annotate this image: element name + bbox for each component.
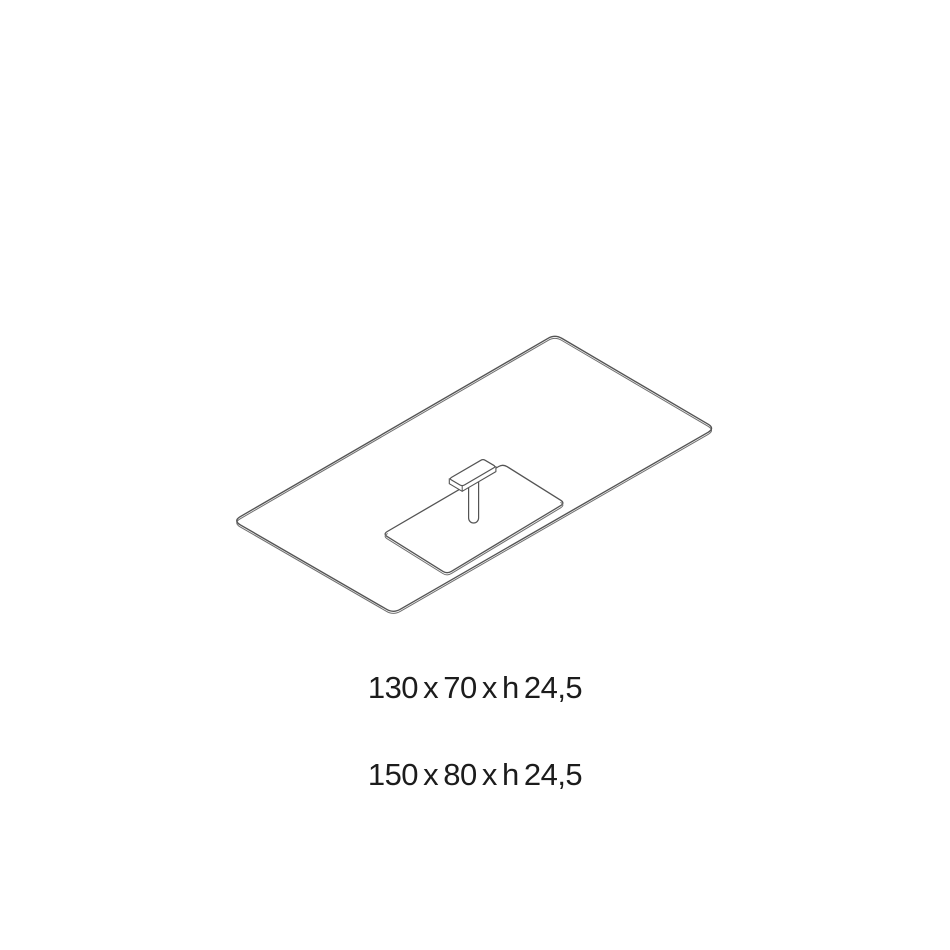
- product-dimension-figure: 130 x 70 x h 24,5 150 x 80 x h 24,5: [0, 0, 950, 950]
- drawing-lines: [237, 336, 712, 613]
- countertop-isometric-drawing: [0, 0, 950, 950]
- dimension-text-2: 150 x 80 x h 24,5: [0, 759, 950, 790]
- dimension-text-1: 130 x 70 x h 24,5: [0, 672, 950, 703]
